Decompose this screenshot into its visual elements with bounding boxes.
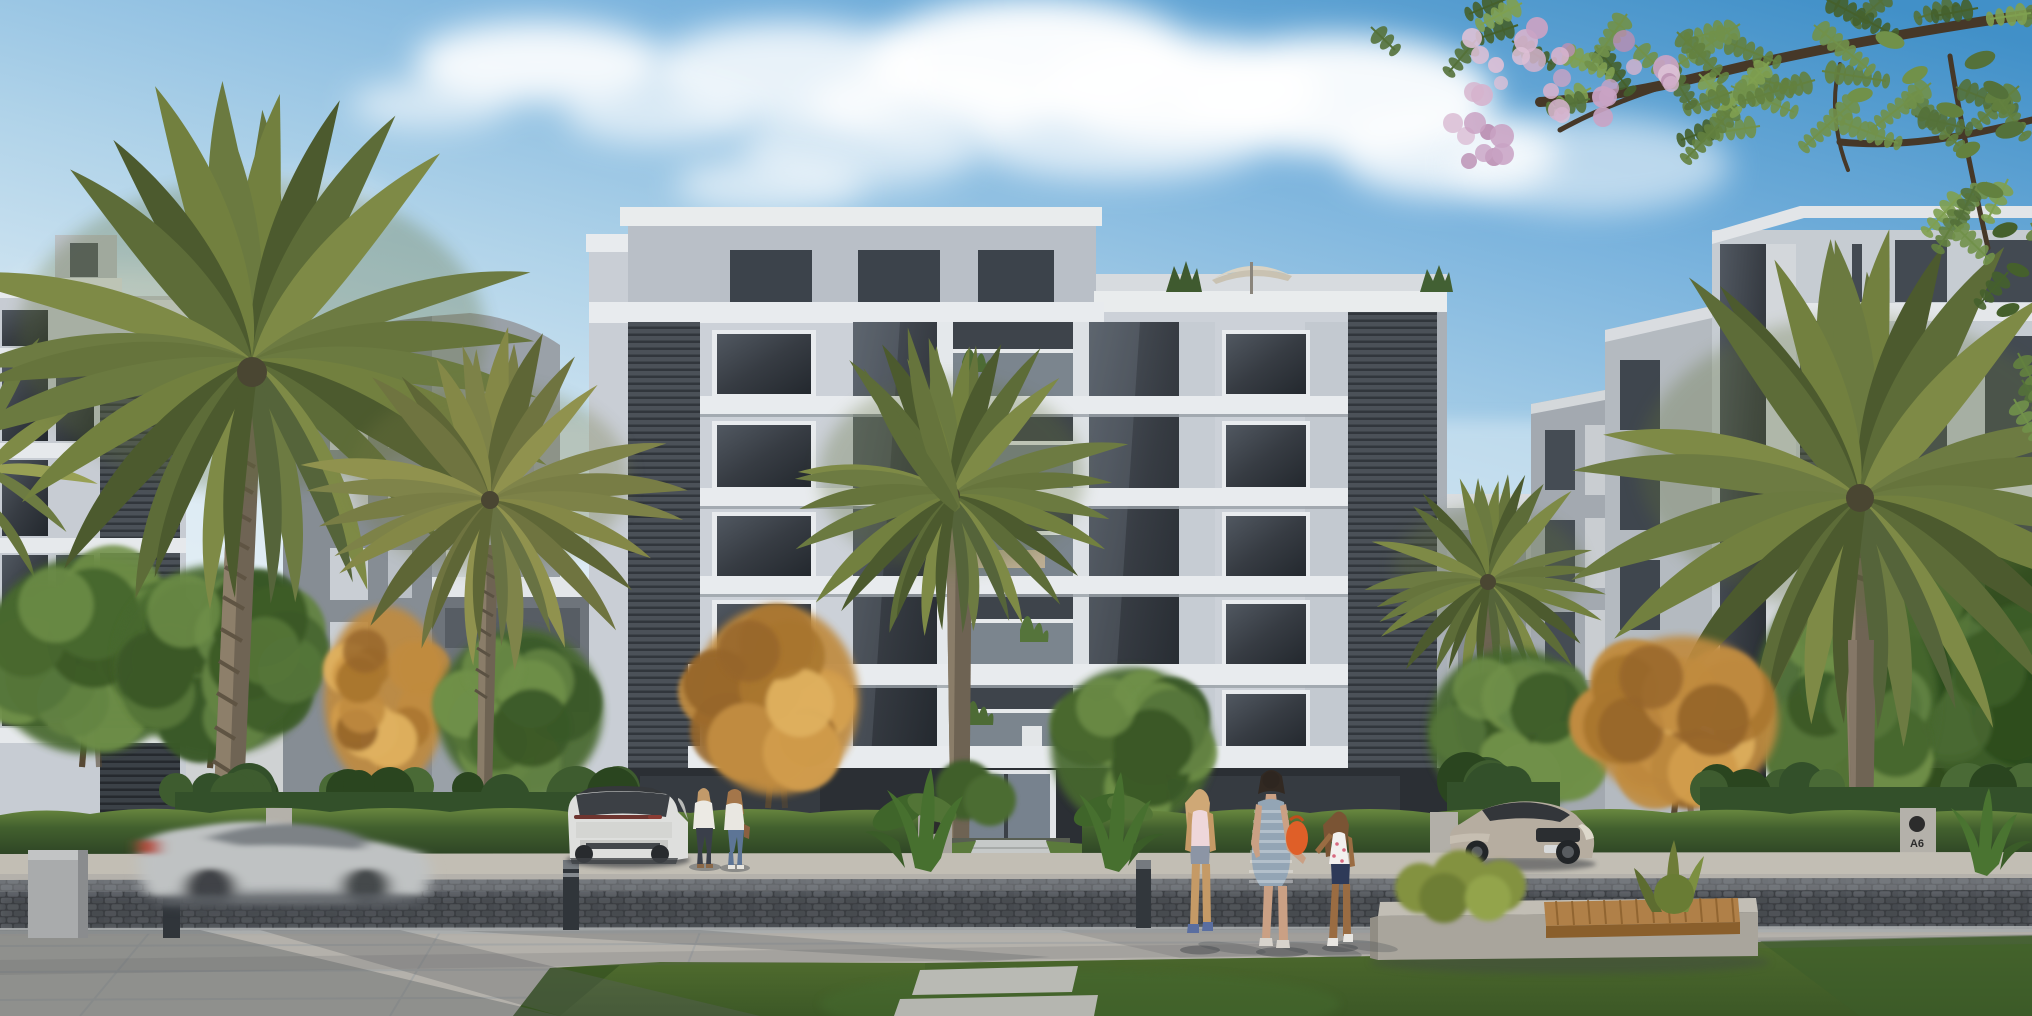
svg-text:A6: A6 (1910, 838, 1924, 850)
